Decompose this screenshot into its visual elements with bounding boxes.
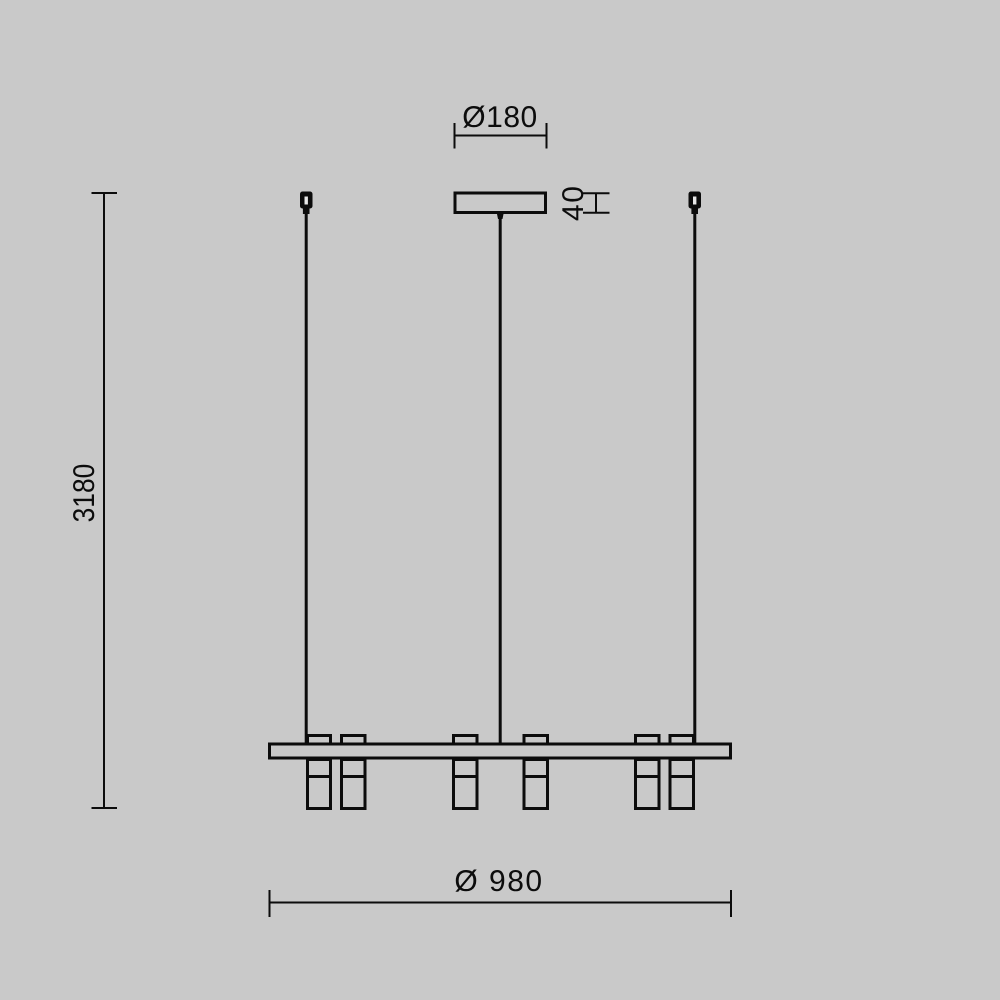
svg-text:Ø180: Ø180	[462, 101, 537, 134]
svg-text:3180: 3180	[68, 464, 101, 523]
svg-text:Ø 980: Ø 980	[454, 865, 543, 898]
svg-text:40: 40	[557, 185, 590, 221]
